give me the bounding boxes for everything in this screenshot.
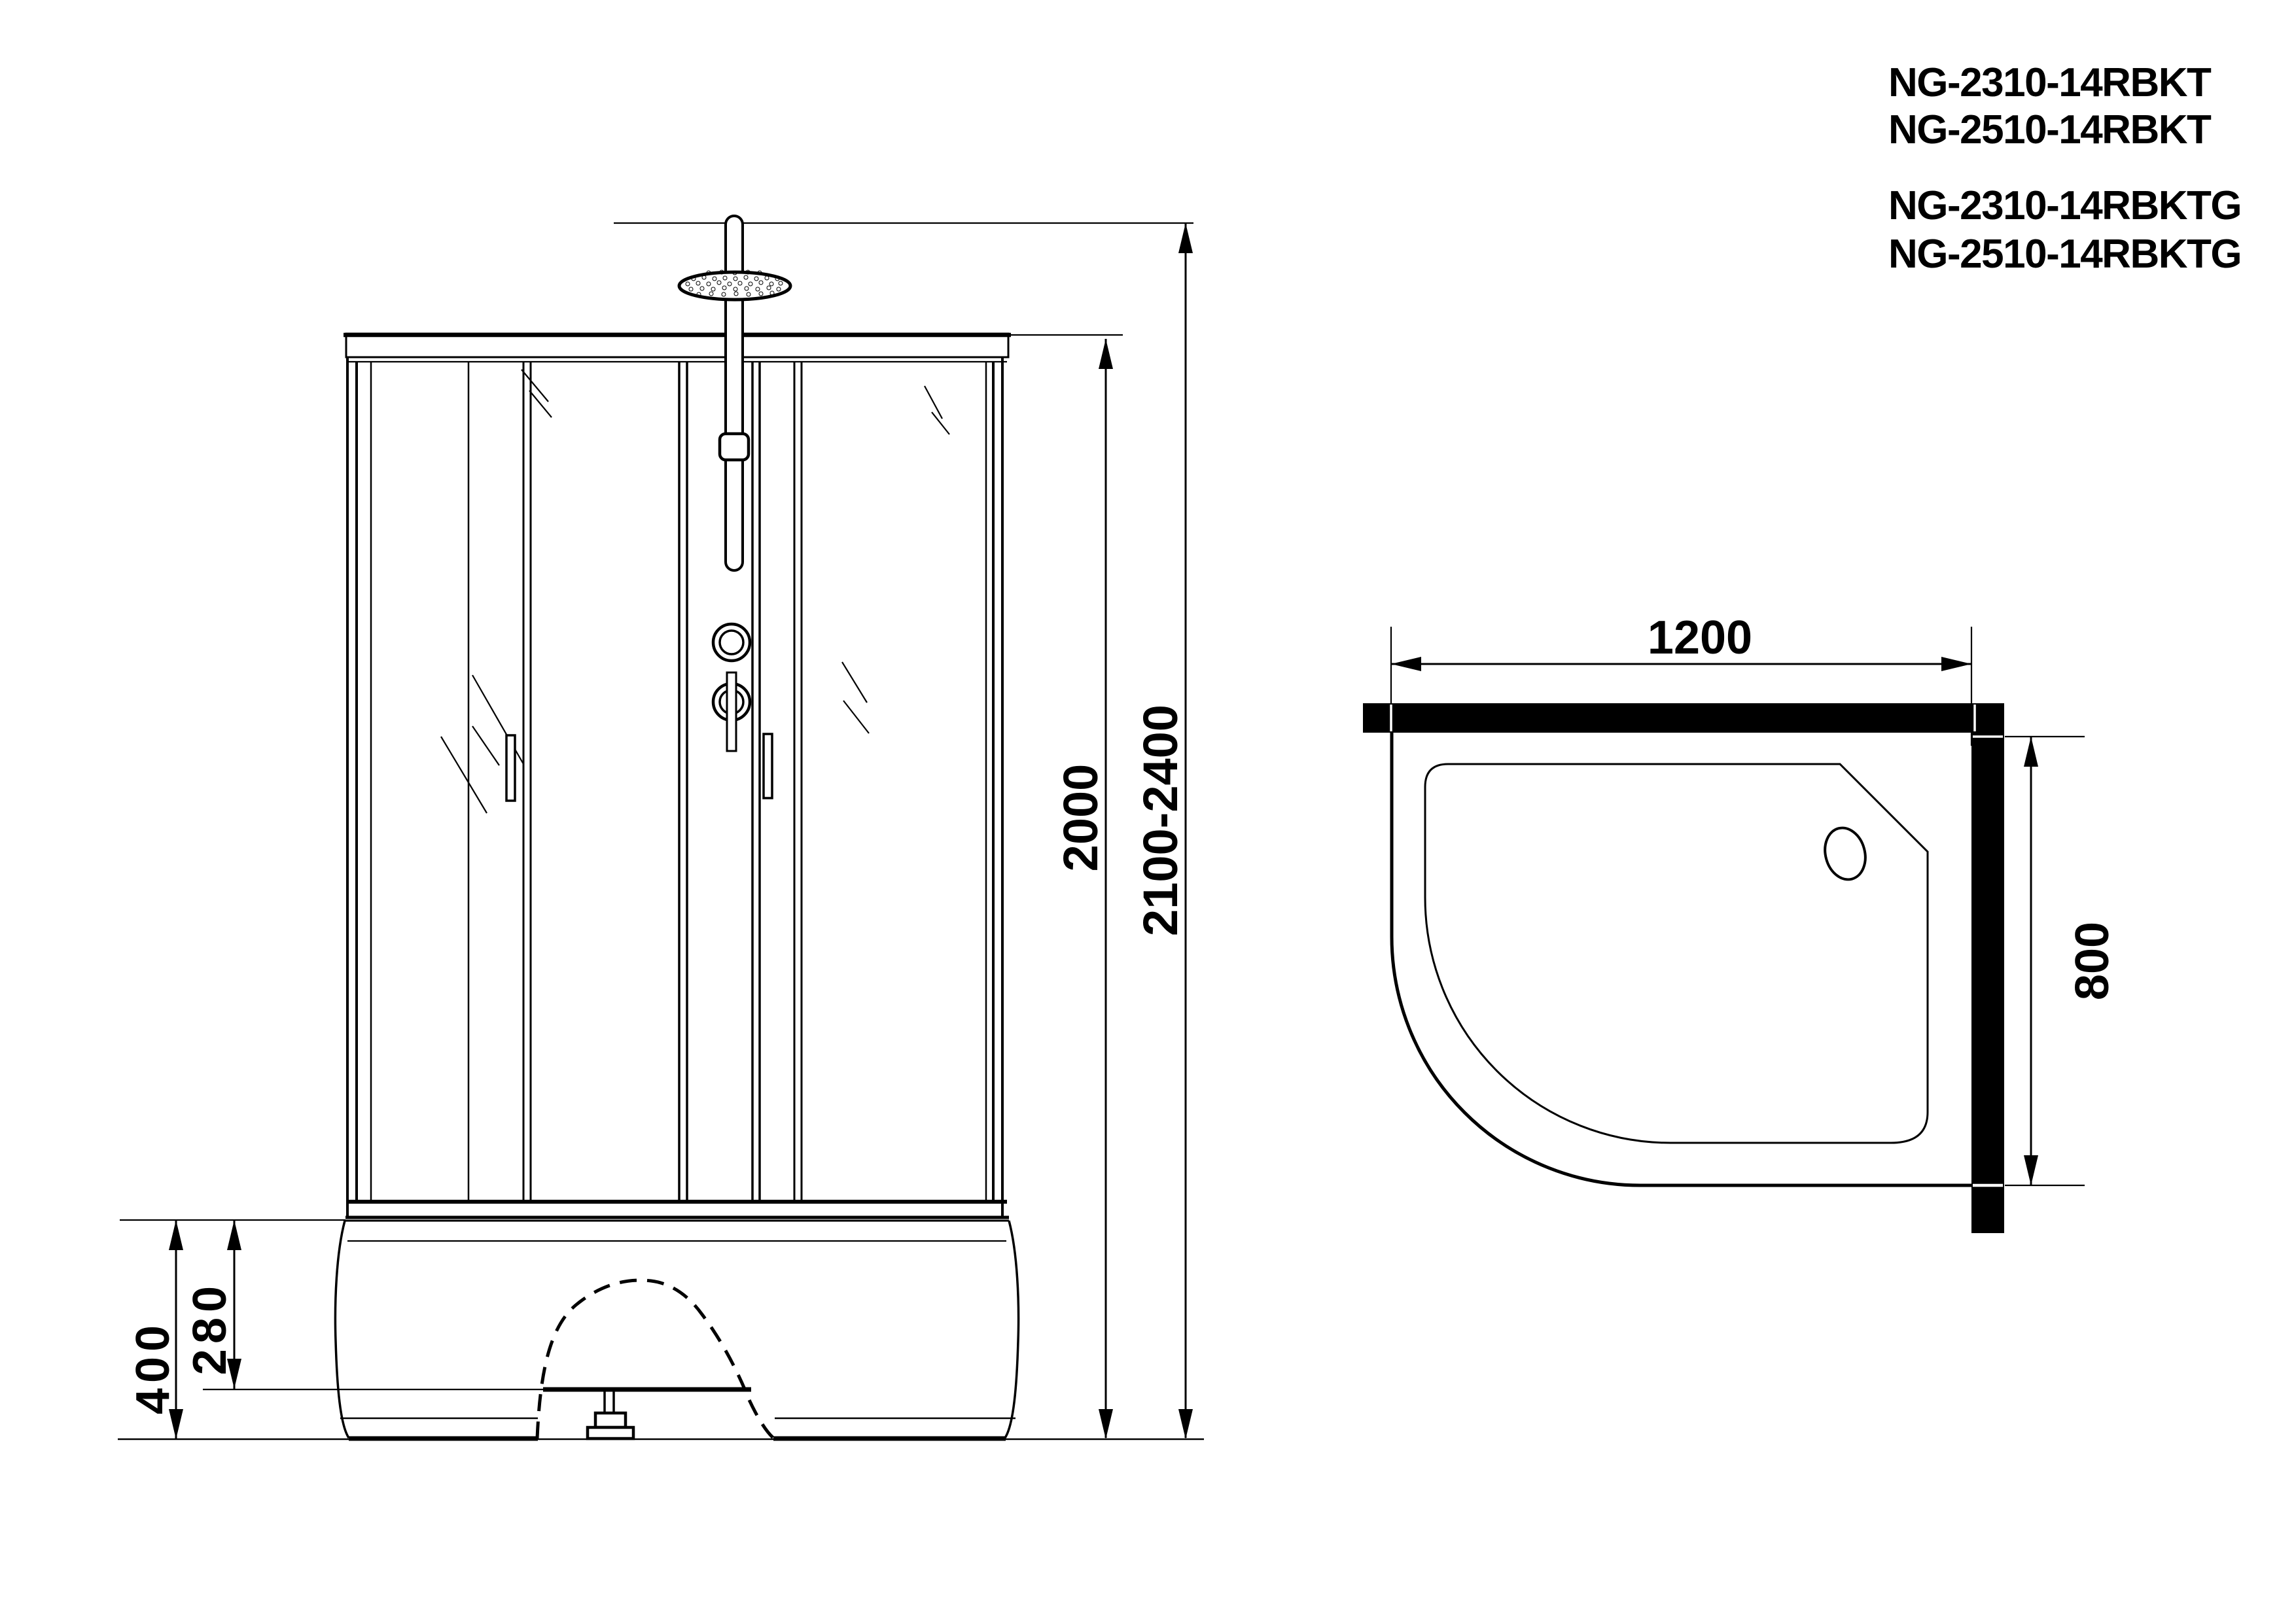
shower-column — [679, 216, 790, 751]
shower-riser-pipe — [726, 216, 743, 570]
shower-head — [679, 270, 790, 300]
mixer-valve-lever — [727, 672, 736, 751]
dim-label-cabin-height: 2000 — [1053, 764, 1108, 872]
dimension-tray-height: 400 — [127, 1220, 183, 1439]
cabin-top-frame — [344, 334, 1011, 362]
dimension-tray-upper-height: 280 — [184, 1220, 241, 1389]
service-panel-dashed-curve — [537, 1280, 774, 1439]
door-handle-left — [506, 735, 515, 801]
dim-label-overall-height: 2100-2400 — [1133, 705, 1188, 936]
model-number-1: NG-2310-14RBKT — [1888, 60, 2212, 105]
bottom-rails — [345, 1202, 1009, 1217]
front-elevation: 2000 2100-2400 400 280 — [118, 216, 1204, 1439]
plan-view: 1200 800 — [1363, 612, 2119, 1233]
model-number-3: NG-2310-14RBKTG — [1888, 183, 2241, 228]
dimension-cabin-height: 2000 — [1053, 339, 1113, 1439]
model-numbers: NG-2310-14RBKT NG-2510-14RBKT NG-2310-14… — [1888, 60, 2241, 277]
model-number-4: NG-2510-14RBKTG — [1888, 232, 2241, 277]
dimension-depth: 800 — [2024, 737, 2119, 1185]
dim-label-depth: 800 — [2066, 922, 2119, 1000]
drain-assembly — [543, 1389, 751, 1439]
model-number-2: NG-2510-14RBKT — [1888, 107, 2212, 152]
shower-tray-front — [335, 1221, 1018, 1439]
shower-cabin-drawing: NG-2310-14RBKT NG-2510-14RBKT NG-2310-14… — [0, 0, 2296, 1623]
back-wall-profile — [1363, 703, 1971, 733]
extension-lines-front — [118, 223, 1204, 1439]
dim-label-tray-height: 400 — [127, 1320, 179, 1414]
glass-panels — [347, 357, 1002, 1217]
dim-label-width: 1200 — [1648, 612, 1752, 664]
side-wall-profile — [1971, 703, 2004, 1233]
shower-slider-bracket — [720, 434, 749, 460]
drain-hole — [1820, 824, 1871, 884]
dimension-overall-height: 2100-2400 — [1133, 223, 1193, 1439]
glass-shine-marks — [441, 370, 949, 813]
wall-profiles — [1363, 703, 2004, 1233]
dimension-width: 1200 — [1391, 612, 1971, 671]
mixer-knob-upper — [713, 624, 750, 661]
shower-tray-plan — [1392, 733, 1971, 1185]
dim-label-tray-upper-height: 280 — [184, 1281, 236, 1375]
drawing-sheet: NG-2310-14RBKT NG-2510-14RBKT NG-2310-14… — [0, 0, 2296, 1623]
door-handle-right — [764, 734, 772, 798]
mixer-knob-lower — [713, 672, 750, 751]
